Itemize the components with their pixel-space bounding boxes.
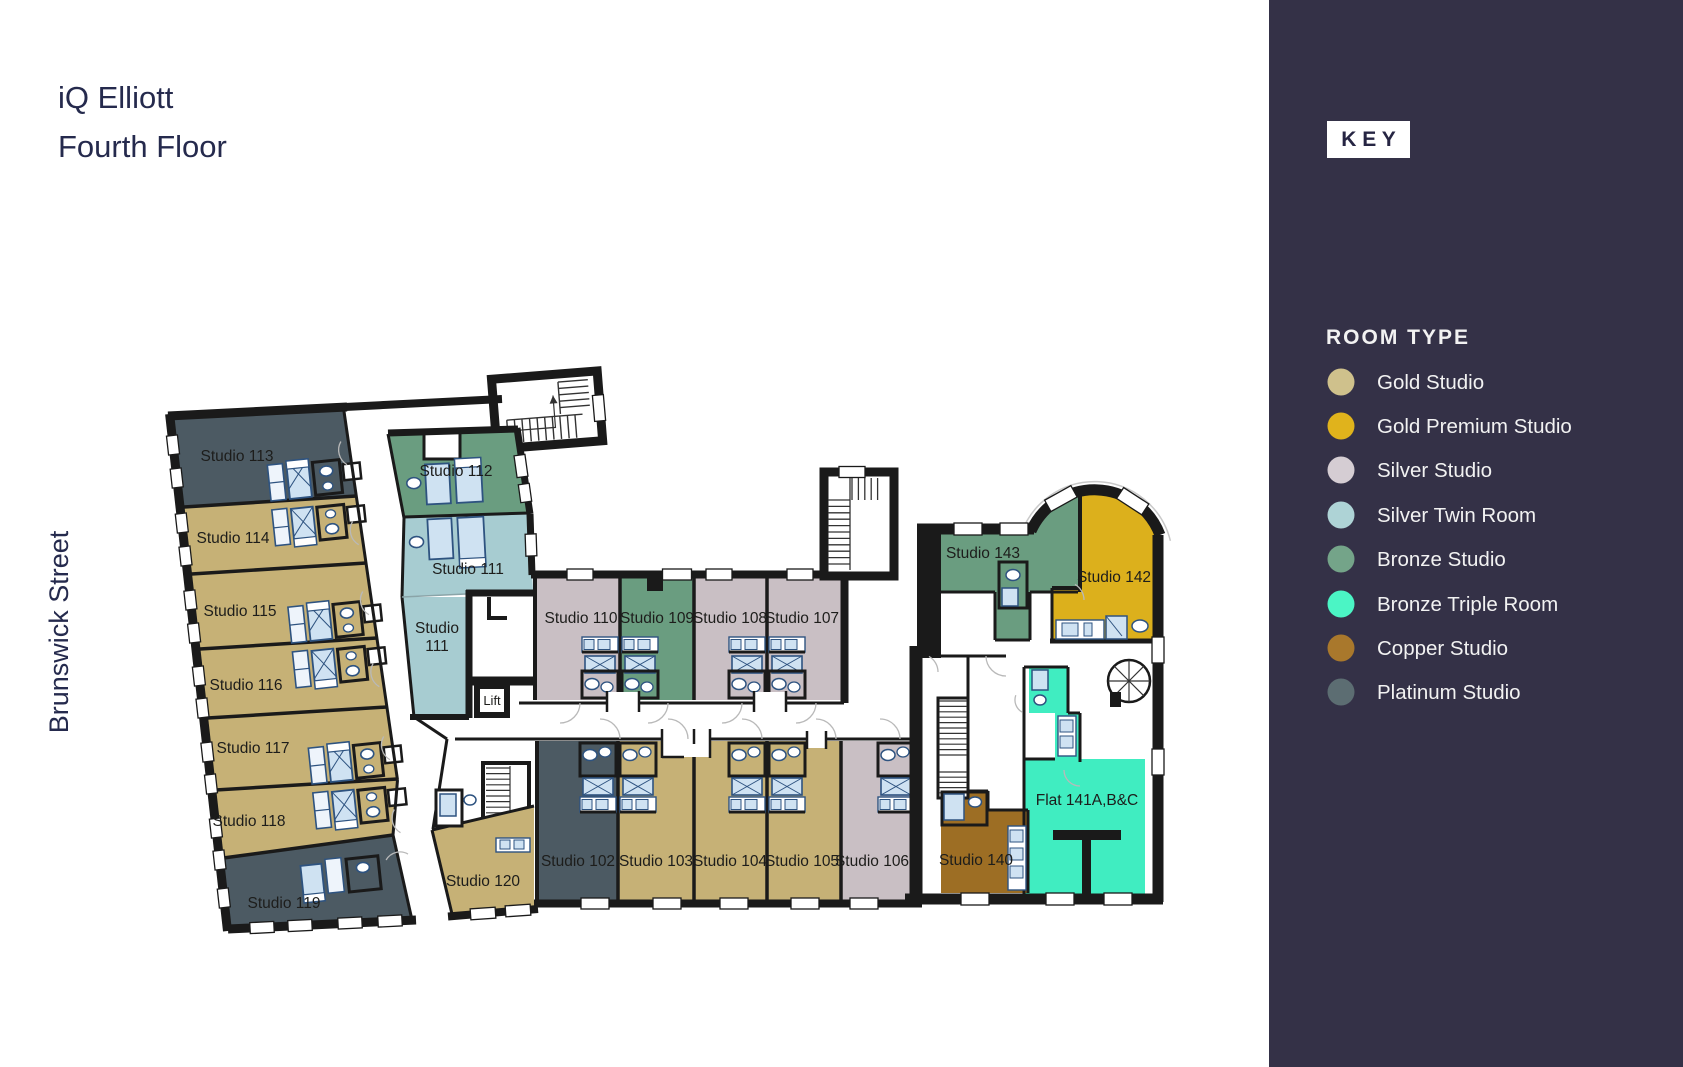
svg-text:Studio 116: Studio 116	[210, 677, 283, 694]
svg-text:Platinum Studio: Platinum Studio	[1377, 681, 1521, 704]
svg-text:Studio 105: Studio 105	[765, 853, 839, 870]
svg-text:Studio 117: Studio 117	[217, 740, 290, 757]
svg-text:Studio 107: Studio 107	[765, 610, 839, 627]
svg-text:111: 111	[425, 638, 449, 655]
svg-text:Studio 115: Studio 115	[204, 603, 277, 620]
svg-text:Copper Studio: Copper Studio	[1377, 637, 1508, 660]
svg-text:Bronze Triple Room: Bronze Triple Room	[1377, 593, 1558, 616]
svg-text:Brunswick Street: Brunswick Street	[44, 530, 74, 733]
svg-text:Studio 103: Studio 103	[619, 853, 693, 870]
svg-text:Gold Premium Studio: Gold Premium Studio	[1377, 415, 1572, 438]
svg-text:Studio 142: Studio 142	[1077, 569, 1151, 586]
svg-text:Studio 102: Studio 102	[541, 853, 615, 870]
svg-text:Studio 114: Studio 114	[197, 530, 270, 547]
svg-text:Bronze Studio: Bronze Studio	[1377, 548, 1506, 571]
svg-text:Studio 119: Studio 119	[248, 895, 321, 912]
svg-text:Silver Studio: Silver Studio	[1377, 459, 1492, 482]
svg-text:K E Y: K E Y	[1341, 128, 1395, 151]
svg-text:iQ Elliott: iQ Elliott	[58, 80, 174, 115]
svg-text:Studio 111: Studio 111	[432, 561, 504, 578]
svg-text:Flat 141A,B&C: Flat 141A,B&C	[1036, 792, 1139, 809]
svg-text:Studio: Studio	[415, 620, 459, 637]
svg-text:Fourth Floor: Fourth Floor	[58, 129, 227, 164]
svg-text:Studio 143: Studio 143	[946, 545, 1020, 562]
svg-text:Studio 104: Studio 104	[693, 853, 767, 870]
svg-text:Studio 112: Studio 112	[420, 463, 493, 480]
svg-text:Studio 109: Studio 109	[620, 610, 694, 627]
svg-text:Lift: Lift	[483, 693, 501, 708]
svg-text:ROOM TYPE: ROOM TYPE	[1326, 326, 1470, 349]
svg-text:Silver Twin Room: Silver Twin Room	[1377, 504, 1536, 527]
svg-text:Studio 113: Studio 113	[201, 448, 274, 465]
svg-text:Studio 120: Studio 120	[446, 873, 520, 890]
svg-text:Gold Studio: Gold Studio	[1377, 371, 1484, 394]
svg-text:Studio 118: Studio 118	[213, 813, 286, 830]
svg-text:Studio 110: Studio 110	[545, 610, 618, 627]
svg-text:Studio 108: Studio 108	[693, 610, 767, 627]
svg-text:Studio 140: Studio 140	[939, 852, 1013, 869]
svg-text:Studio 106: Studio 106	[835, 853, 909, 870]
